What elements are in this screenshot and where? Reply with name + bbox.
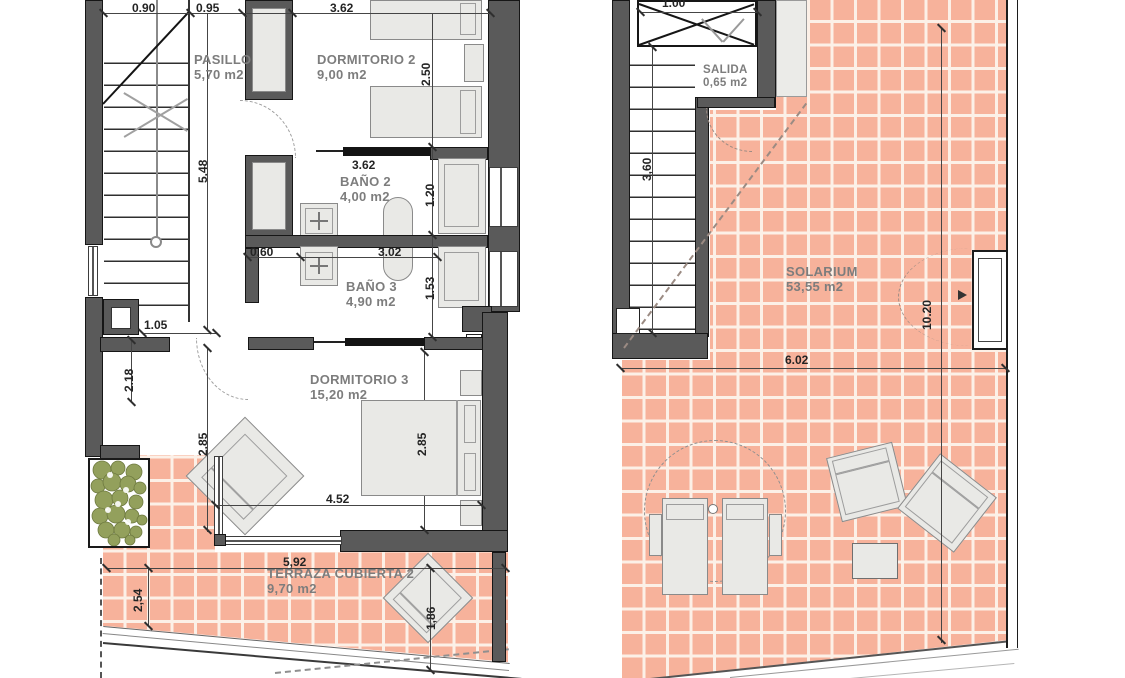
dim-label: 3.02 (378, 245, 401, 259)
plant-icon (90, 460, 148, 546)
bathtub-inner (444, 164, 479, 227)
coffee-table (852, 543, 898, 579)
pillow (460, 3, 476, 35)
dim-line (142, 333, 216, 334)
dim-label: 2.85 (196, 433, 210, 456)
dim-line (148, 568, 149, 626)
stair-centerline-end (150, 236, 162, 248)
sliding-door (343, 147, 430, 156)
wall-segment (695, 97, 709, 337)
dim-label: 2.18 (122, 369, 136, 392)
pillow (464, 453, 476, 491)
sliding-door-leaf (314, 341, 345, 343)
glass-line (223, 540, 341, 542)
room-label-bano2: BAÑO 24,00 m2 (340, 174, 391, 204)
wall-segment (100, 337, 170, 352)
wall-segment (85, 0, 103, 245)
floor-plan-sheet: 0.90 0.95 3.62 5.48 2.50 3.62 1.20 0.60 … (0, 0, 1125, 678)
lower-roof-strip (776, 0, 807, 97)
dim-label: 4.52 (326, 492, 349, 506)
room-label-pasillo: PASILLO5,70 m2 (194, 52, 251, 82)
wall-segment (248, 337, 314, 350)
dim-line (941, 28, 942, 643)
dim-label: 10.20 (920, 300, 934, 330)
dim-label: 2.50 (419, 63, 433, 86)
dim-label: 5.48 (196, 160, 210, 183)
bed-sheet-line (456, 400, 458, 496)
bathtub-inner (444, 252, 479, 301)
dim-label: 6.02 (785, 353, 808, 367)
room-label-dormitorio2: DORMITORIO 29,00 m2 (317, 52, 416, 82)
hatch-arrow (958, 290, 967, 300)
dim-label: 0.95 (196, 1, 219, 15)
dim-label: 2.85 (415, 433, 429, 456)
closet-inset (111, 307, 131, 329)
stair-edge (188, 0, 190, 322)
roof-opening-inner (978, 258, 1002, 342)
dim-label: 3,60 (640, 158, 654, 181)
door-swing-arc (240, 100, 296, 158)
dim-label: 1.00 (662, 0, 685, 10)
dim-line (247, 257, 437, 258)
glass-line (218, 457, 220, 543)
dim-label: 1.05 (144, 318, 167, 332)
planter (88, 458, 150, 548)
dim-label: 1,86 (424, 607, 438, 630)
roof-line (850, 663, 1014, 678)
dim-label: 3.62 (330, 1, 353, 15)
room-label-solarium: SOLARIUM53,55 m2 (786, 264, 858, 294)
dim-line (620, 368, 1005, 369)
pillow (460, 90, 476, 134)
faucet-cross (318, 212, 320, 230)
lounger-headrest (726, 504, 764, 520)
pillow (464, 405, 476, 443)
room-label-salida: SALIDA0,65 m2 (703, 64, 748, 90)
window-glass-line (500, 252, 502, 306)
wardrobe-inset (252, 8, 286, 92)
dim-line (652, 47, 653, 333)
parasol-base (708, 504, 718, 514)
window (489, 167, 518, 227)
stairs-right (630, 44, 695, 336)
stairs-left (104, 42, 189, 318)
dim-label: 1.53 (423, 277, 437, 300)
wall-segment (340, 530, 508, 552)
lounger-headrest (666, 504, 704, 520)
wardrobe-inset (252, 162, 286, 230)
wall-corner-stub (100, 445, 140, 459)
wall-segment (85, 297, 103, 457)
room-label-terraza: TERRAZA CUBIERTA 29,70 m2 (267, 566, 414, 596)
sliding-door-leaf (316, 150, 343, 152)
window-glass-line (92, 247, 94, 295)
room-label-bano3: BAÑO 34,90 m2 (346, 279, 397, 309)
sliding-door (345, 338, 425, 346)
stair-centerline (156, 0, 158, 240)
wall-segment (482, 312, 508, 538)
dim-label: 0.90 (132, 1, 155, 15)
dim-label: 0.60 (250, 245, 273, 259)
dim-label: 1.20 (423, 184, 437, 207)
faucet-cross (318, 257, 320, 274)
nightstand (460, 370, 482, 396)
wall-segment (697, 97, 775, 108)
nightstand (464, 44, 484, 82)
side-table (769, 514, 782, 556)
corner-post (214, 534, 226, 546)
boundary-dashed-line (100, 558, 102, 678)
door-swing-arc (196, 338, 248, 400)
window-glass-line (500, 168, 502, 226)
side-table (649, 514, 662, 556)
dim-label: 2,54 (131, 589, 145, 612)
wall-segment (612, 0, 630, 348)
dim-line (640, 12, 757, 13)
room-label-dormitorio3: DORMITORIO 315,20 m2 (310, 372, 409, 402)
window (489, 251, 518, 307)
dim-label: 3.62 (352, 158, 375, 172)
